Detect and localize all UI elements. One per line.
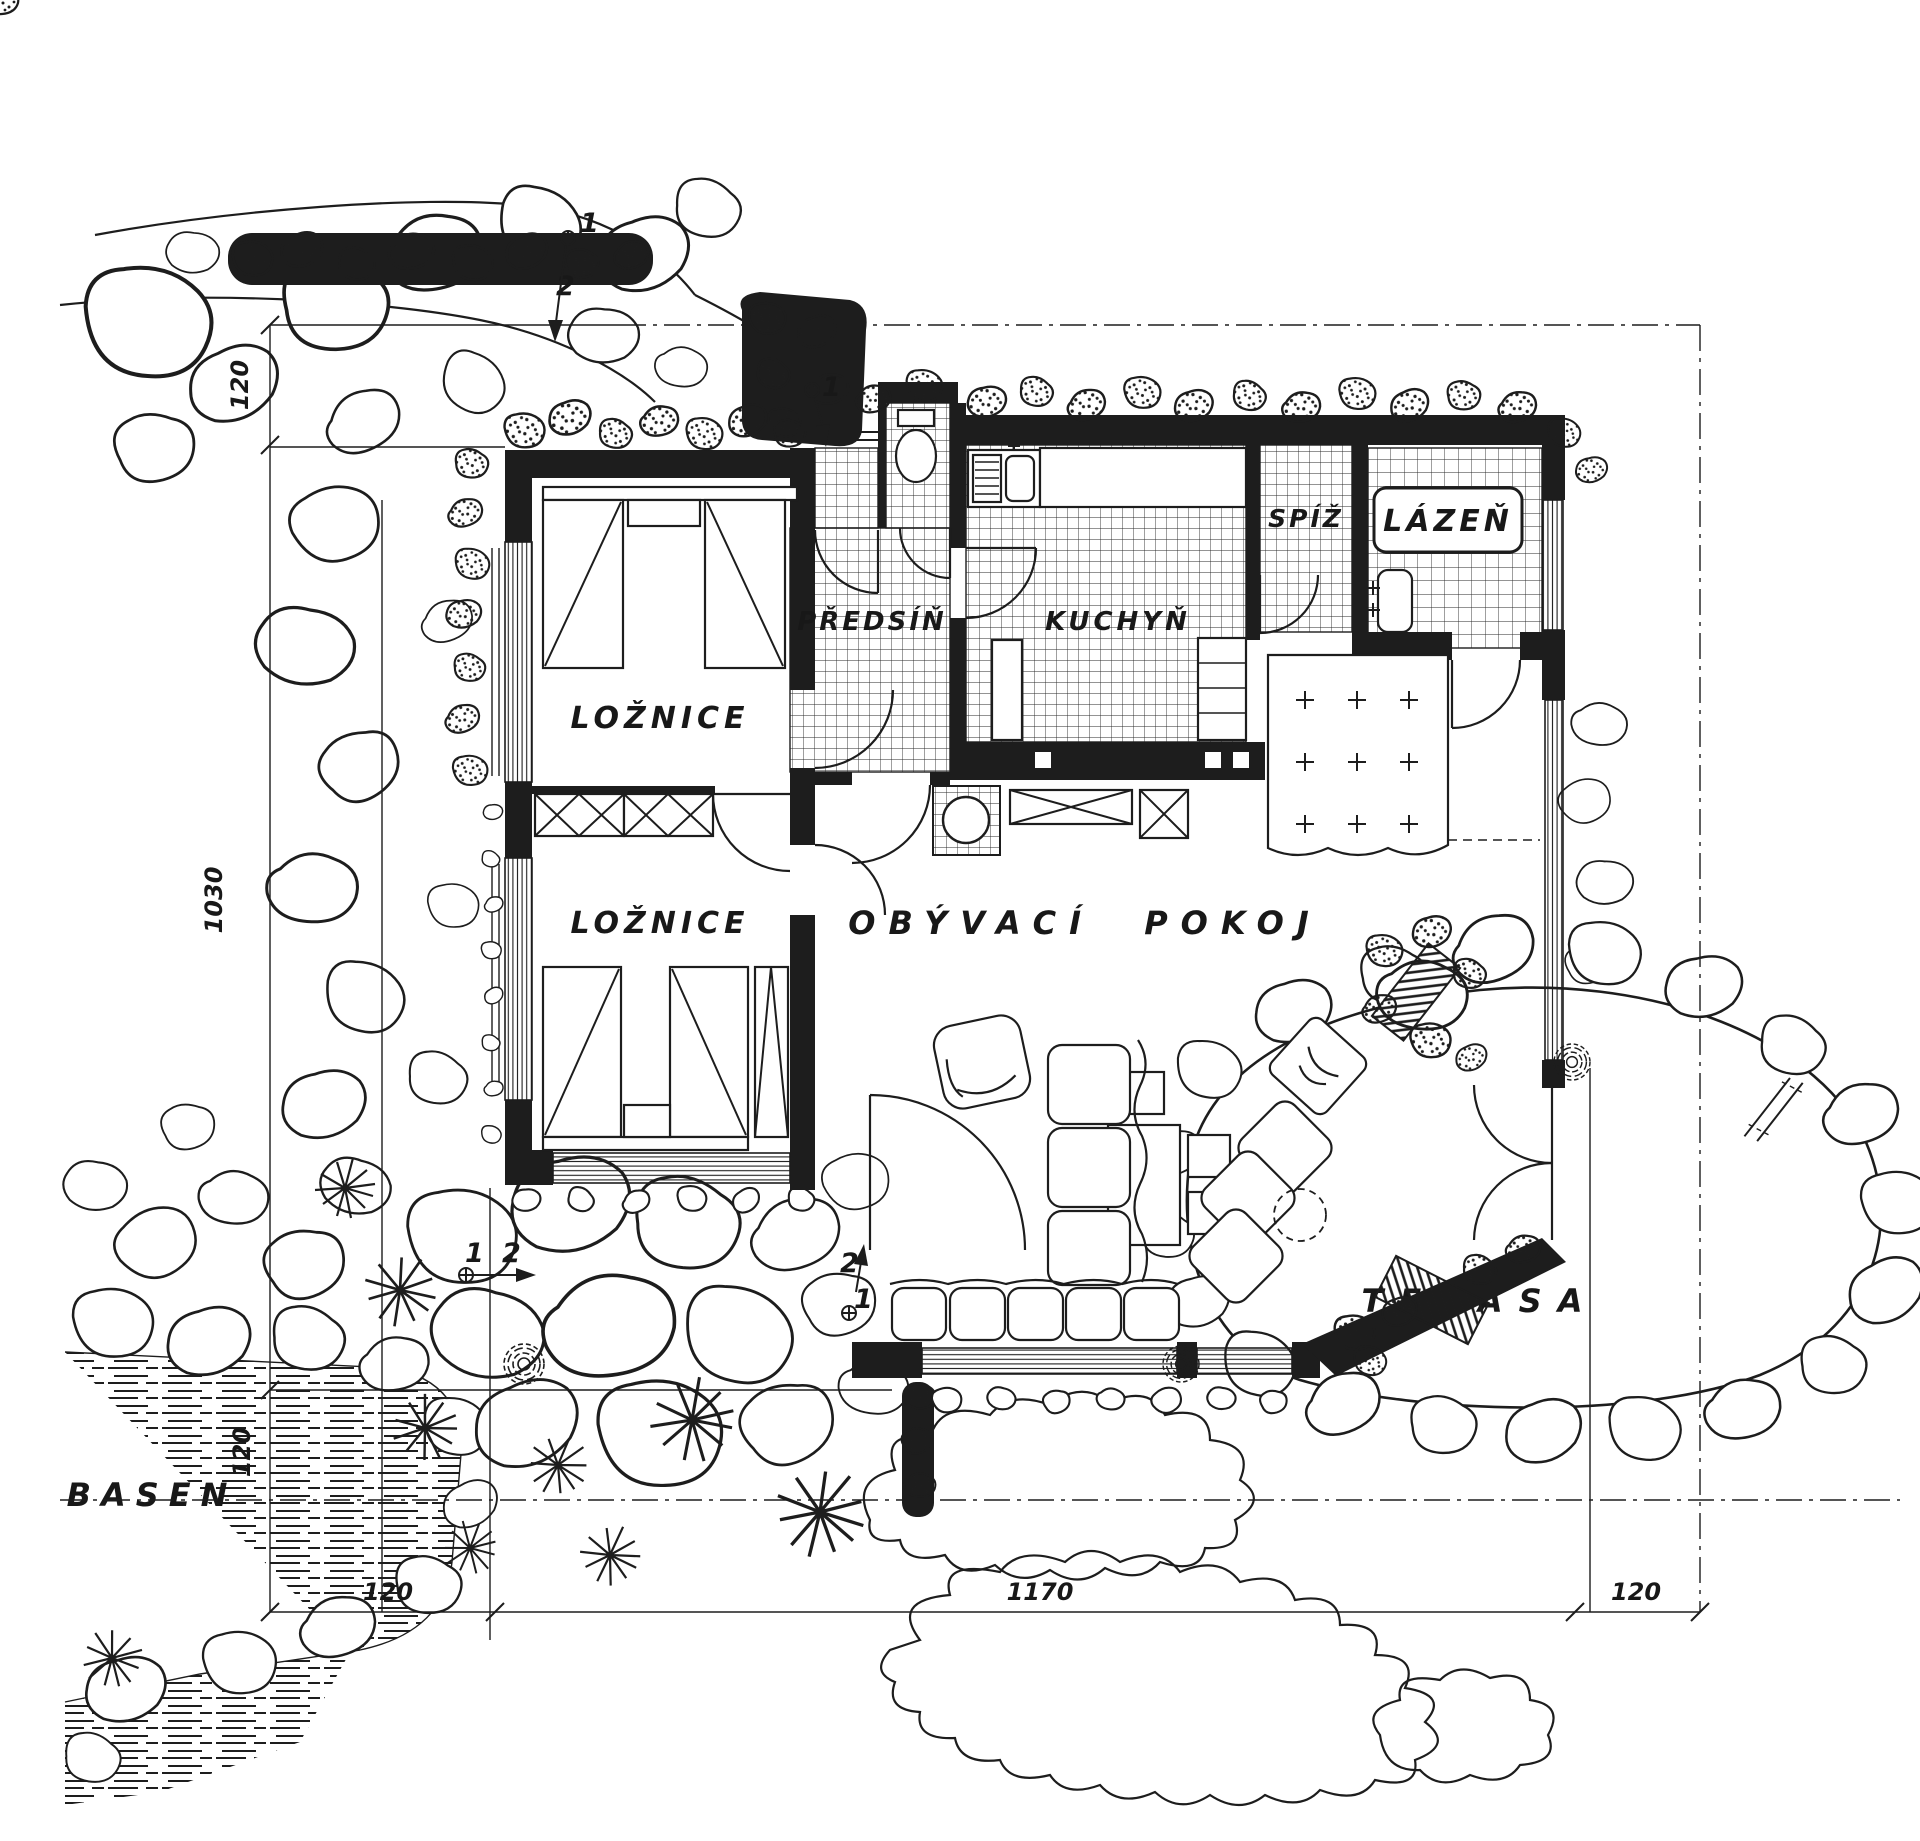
room-label-bath: LÁZEŇ (1383, 503, 1513, 539)
section-number: 1 (822, 372, 841, 403)
dim-left-bottom: 120 (228, 1427, 256, 1477)
section-number: 1 (854, 1284, 873, 1315)
garden-bushes (864, 1392, 1554, 1805)
bedroom1-window (505, 542, 532, 782)
pool-basen: BASEN (58, 1284, 505, 1805)
room-label-living: OBÝVACÍ POKOJ (848, 904, 1321, 942)
kitchen-stove (1198, 638, 1246, 740)
dim-bottom-middle: 1170 (1007, 1578, 1074, 1606)
section-number: 2 (502, 1238, 521, 1269)
toilet-tank (898, 410, 934, 426)
living-south-window-2 (1197, 1348, 1292, 1374)
section-number: 1 (580, 208, 599, 239)
kitchen-cabinet-left (992, 640, 1022, 740)
section-number: 1 (465, 1238, 484, 1269)
floor-plan-page: BASEN TERASA (0, 0, 1920, 1841)
living-south-window-1 (922, 1348, 1177, 1374)
pantry-floor (1260, 445, 1352, 632)
room-label-pool: BASEN (67, 1476, 238, 1514)
dim-bottom-left: 120 (363, 1578, 413, 1606)
living-east-window (1545, 700, 1563, 1060)
hall-living-door (852, 785, 930, 863)
floor-plan-canvas: BASEN TERASA (0, 0, 1920, 1841)
top-stone-path (0, 0, 653, 285)
dim-left-middle: 1030 (200, 867, 228, 934)
bedroom2-south-window (553, 1153, 790, 1183)
porch-floor (815, 448, 878, 528)
room-label-bedroom-1: LOŽNICE (570, 700, 749, 736)
room-label-kitchen: KUCHYŇ (1045, 605, 1191, 637)
dim-bottom-right: 120 (1611, 1578, 1661, 1606)
room-label-hall: PŘEDSÍŇ (797, 605, 947, 637)
bathtub (1378, 570, 1412, 632)
bedroom2-window (505, 858, 532, 1100)
kitchen-counter (1040, 448, 1246, 507)
living-patio-door (870, 1095, 1025, 1250)
room-label-pantry: SPÍŽ (1268, 503, 1344, 533)
toilet-bowl (896, 430, 936, 482)
room-label-bedroom-2: LOŽNICE (570, 905, 749, 941)
bath-door (1452, 660, 1520, 728)
bath-east-window (1543, 500, 1563, 630)
dim-left-top: 120 (226, 360, 254, 410)
daybed (1268, 655, 1540, 855)
